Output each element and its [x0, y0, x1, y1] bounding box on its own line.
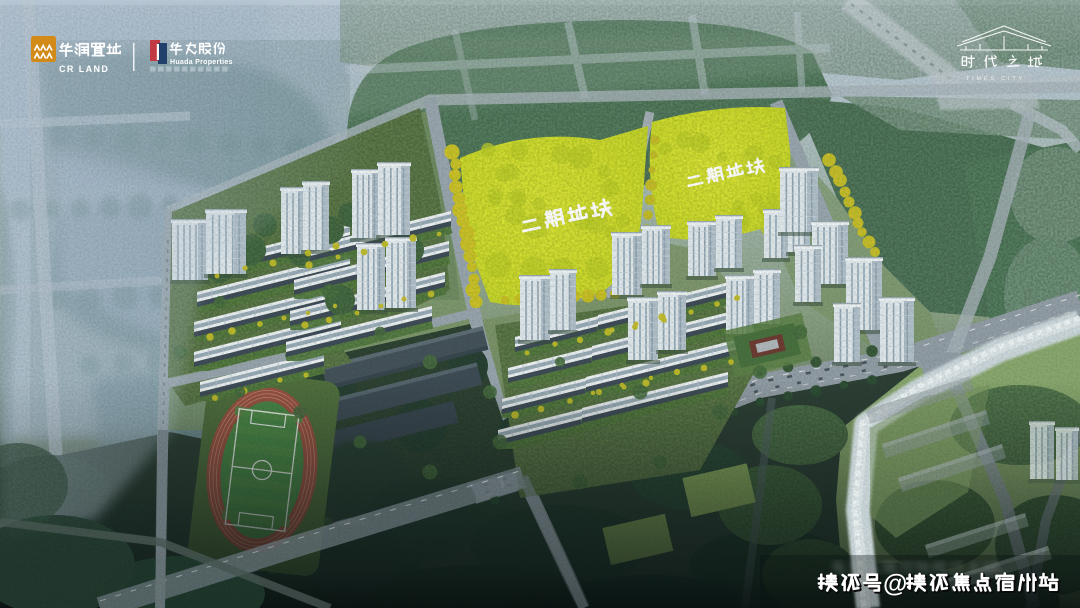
svg-text:Huada Properties: Huada Properties: [170, 59, 233, 66]
svg-text:CR LAND: CR LAND: [59, 64, 109, 74]
svg-text:TIMES CITY: TIMES CITY: [966, 76, 1025, 82]
svg-text:@: @: [883, 570, 907, 598]
